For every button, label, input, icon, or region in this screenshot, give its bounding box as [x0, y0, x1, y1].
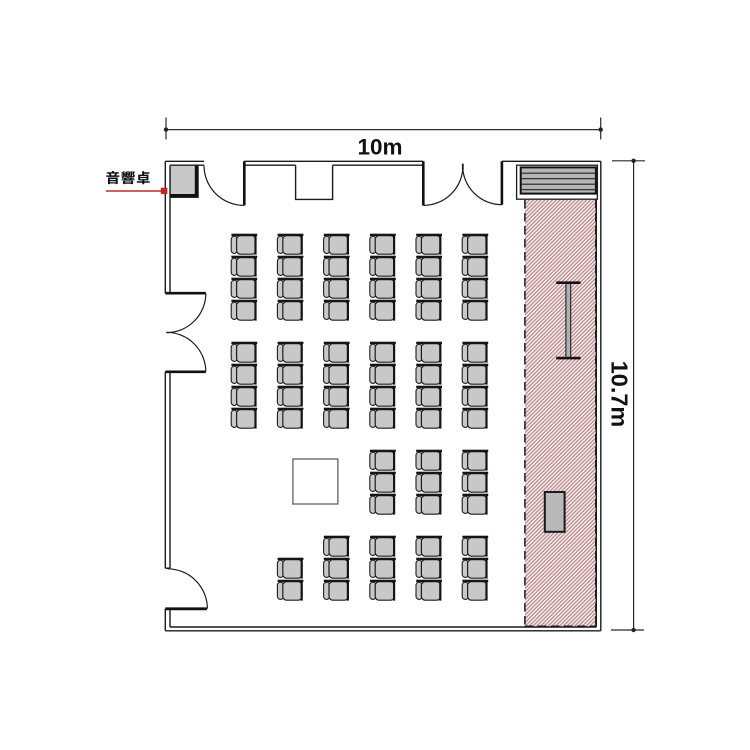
svg-text:10m: 10m [357, 134, 402, 159]
svg-text:10.7m: 10.7m [607, 361, 633, 428]
